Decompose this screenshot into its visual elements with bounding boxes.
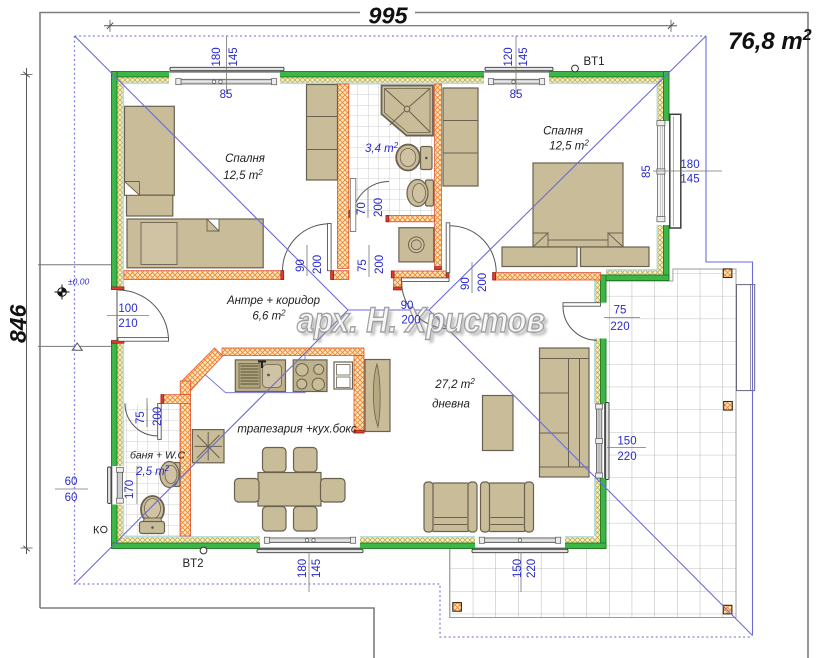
svg-text:арх. Н. Христов: арх. Н. Христов: [297, 301, 545, 340]
svg-text:60: 60: [65, 476, 78, 488]
svg-text:170: 170: [124, 480, 136, 499]
svg-text:200: 200: [401, 315, 420, 327]
svg-text:145: 145: [311, 559, 323, 578]
svg-text:75: 75: [614, 305, 627, 317]
svg-text:баня + W.C: баня + W.C: [130, 450, 186, 462]
svg-text:200: 200: [152, 407, 164, 426]
svg-text:145: 145: [518, 47, 530, 66]
svg-text:76,8 m2: 76,8 m2: [728, 27, 812, 55]
svg-text:BT2: BT2: [182, 558, 203, 570]
svg-text:150: 150: [617, 436, 636, 448]
svg-text:12,5 m2: 12,5 m2: [549, 139, 589, 153]
svg-text:27,2 m2: 27,2 m2: [434, 377, 475, 391]
svg-text:200: 200: [477, 273, 489, 292]
svg-text:2,5 m2: 2,5 m2: [135, 464, 170, 478]
svg-text:BT1: BT1: [583, 56, 604, 68]
svg-text:120: 120: [503, 47, 515, 66]
svg-text:200: 200: [373, 198, 385, 217]
svg-text:180: 180: [297, 559, 309, 578]
svg-text:60: 60: [65, 492, 78, 504]
svg-text:3,4 m2: 3,4 m2: [365, 141, 399, 155]
svg-text:145: 145: [680, 174, 699, 186]
svg-text:12,5 m2: 12,5 m2: [223, 168, 263, 182]
svg-text:дневна: дневна: [432, 399, 470, 411]
svg-text:220: 220: [526, 559, 538, 578]
svg-text:85: 85: [510, 89, 523, 101]
svg-text:210: 210: [118, 318, 137, 330]
svg-text:90: 90: [295, 259, 307, 272]
svg-text:150: 150: [512, 559, 524, 578]
svg-text:90: 90: [460, 277, 472, 290]
svg-text:6,6 m2: 6,6 m2: [252, 309, 286, 323]
svg-text:85: 85: [220, 89, 233, 101]
svg-text:Спалня: Спалня: [543, 126, 583, 138]
svg-text:846: 846: [5, 304, 31, 343]
svg-text:100: 100: [118, 303, 137, 315]
svg-text:Спалня: Спалня: [225, 153, 265, 165]
svg-text:220: 220: [610, 321, 629, 333]
svg-text:180: 180: [211, 47, 223, 66]
svg-text:200: 200: [312, 255, 324, 274]
svg-text:995: 995: [368, 3, 408, 29]
svg-text:±0,00: ±0,00: [68, 277, 89, 287]
svg-text:75: 75: [135, 411, 147, 424]
svg-text:220: 220: [617, 451, 636, 463]
svg-text:К: К: [93, 525, 100, 537]
svg-text:180: 180: [680, 159, 699, 171]
svg-text:75: 75: [357, 259, 369, 272]
svg-text:90: 90: [401, 300, 414, 312]
svg-text:трапезария +кух.бокс: трапезария +кух.бокс: [237, 424, 356, 436]
svg-text:145: 145: [228, 47, 240, 66]
svg-text:70: 70: [356, 202, 368, 215]
svg-text:85: 85: [641, 165, 653, 178]
svg-text:200: 200: [374, 255, 386, 274]
svg-text:Антре + коридор: Антре + коридор: [226, 295, 321, 307]
